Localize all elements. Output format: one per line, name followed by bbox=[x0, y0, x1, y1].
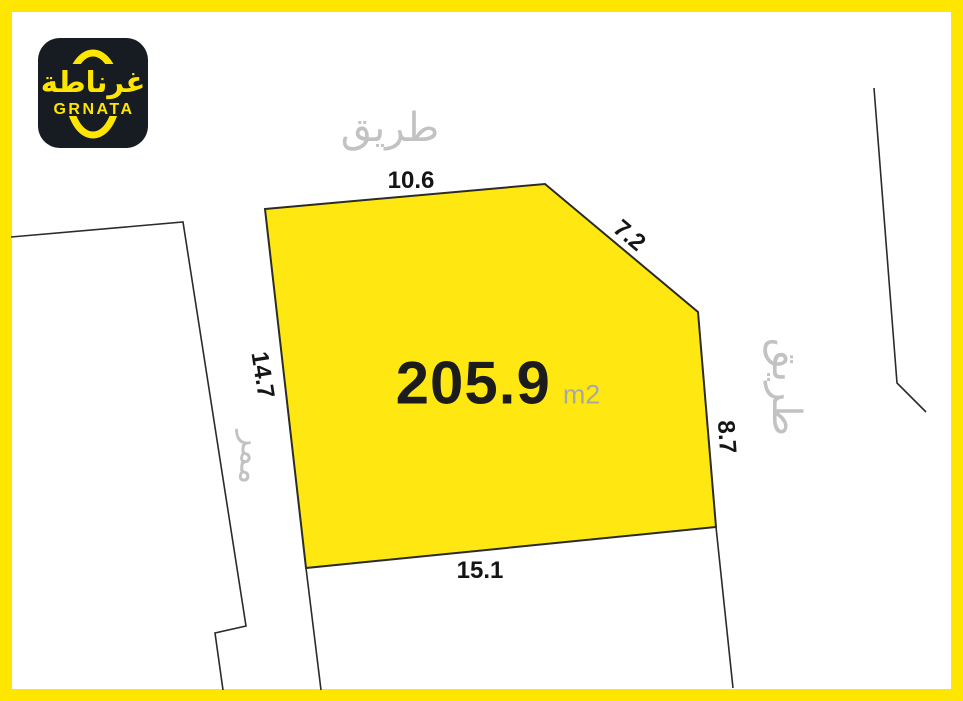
logo-latin-text: GRNATA bbox=[53, 101, 134, 118]
road-label-top: طريق bbox=[341, 105, 439, 151]
logo-arabic-text: غرناطة bbox=[41, 65, 146, 99]
brand-logo: غرناطة GRNATA bbox=[38, 38, 148, 148]
measurement-right: 8.7 bbox=[711, 419, 741, 454]
area-annotation: 205.9 m2 bbox=[396, 349, 601, 418]
road-label-right: طريق bbox=[763, 338, 809, 436]
passage-boundary-line bbox=[306, 568, 321, 690]
neighbor-parcel-outline bbox=[11, 222, 246, 690]
area-unit: m2 bbox=[563, 380, 601, 411]
brand-logo-icon: غرناطة GRNATA bbox=[38, 38, 148, 148]
passage-label-left: ممر bbox=[231, 430, 273, 486]
measurement-top: 10.6 bbox=[388, 167, 435, 195]
road-edge-line bbox=[874, 88, 926, 412]
plot-map-page: طريق طريق ممر 10.6 7.2 8.7 15.1 14.7 205… bbox=[0, 0, 963, 701]
lower-parcel-boundary-line bbox=[716, 527, 733, 688]
measurement-bottom: 15.1 bbox=[457, 557, 504, 585]
area-value: 205.9 bbox=[396, 349, 551, 418]
